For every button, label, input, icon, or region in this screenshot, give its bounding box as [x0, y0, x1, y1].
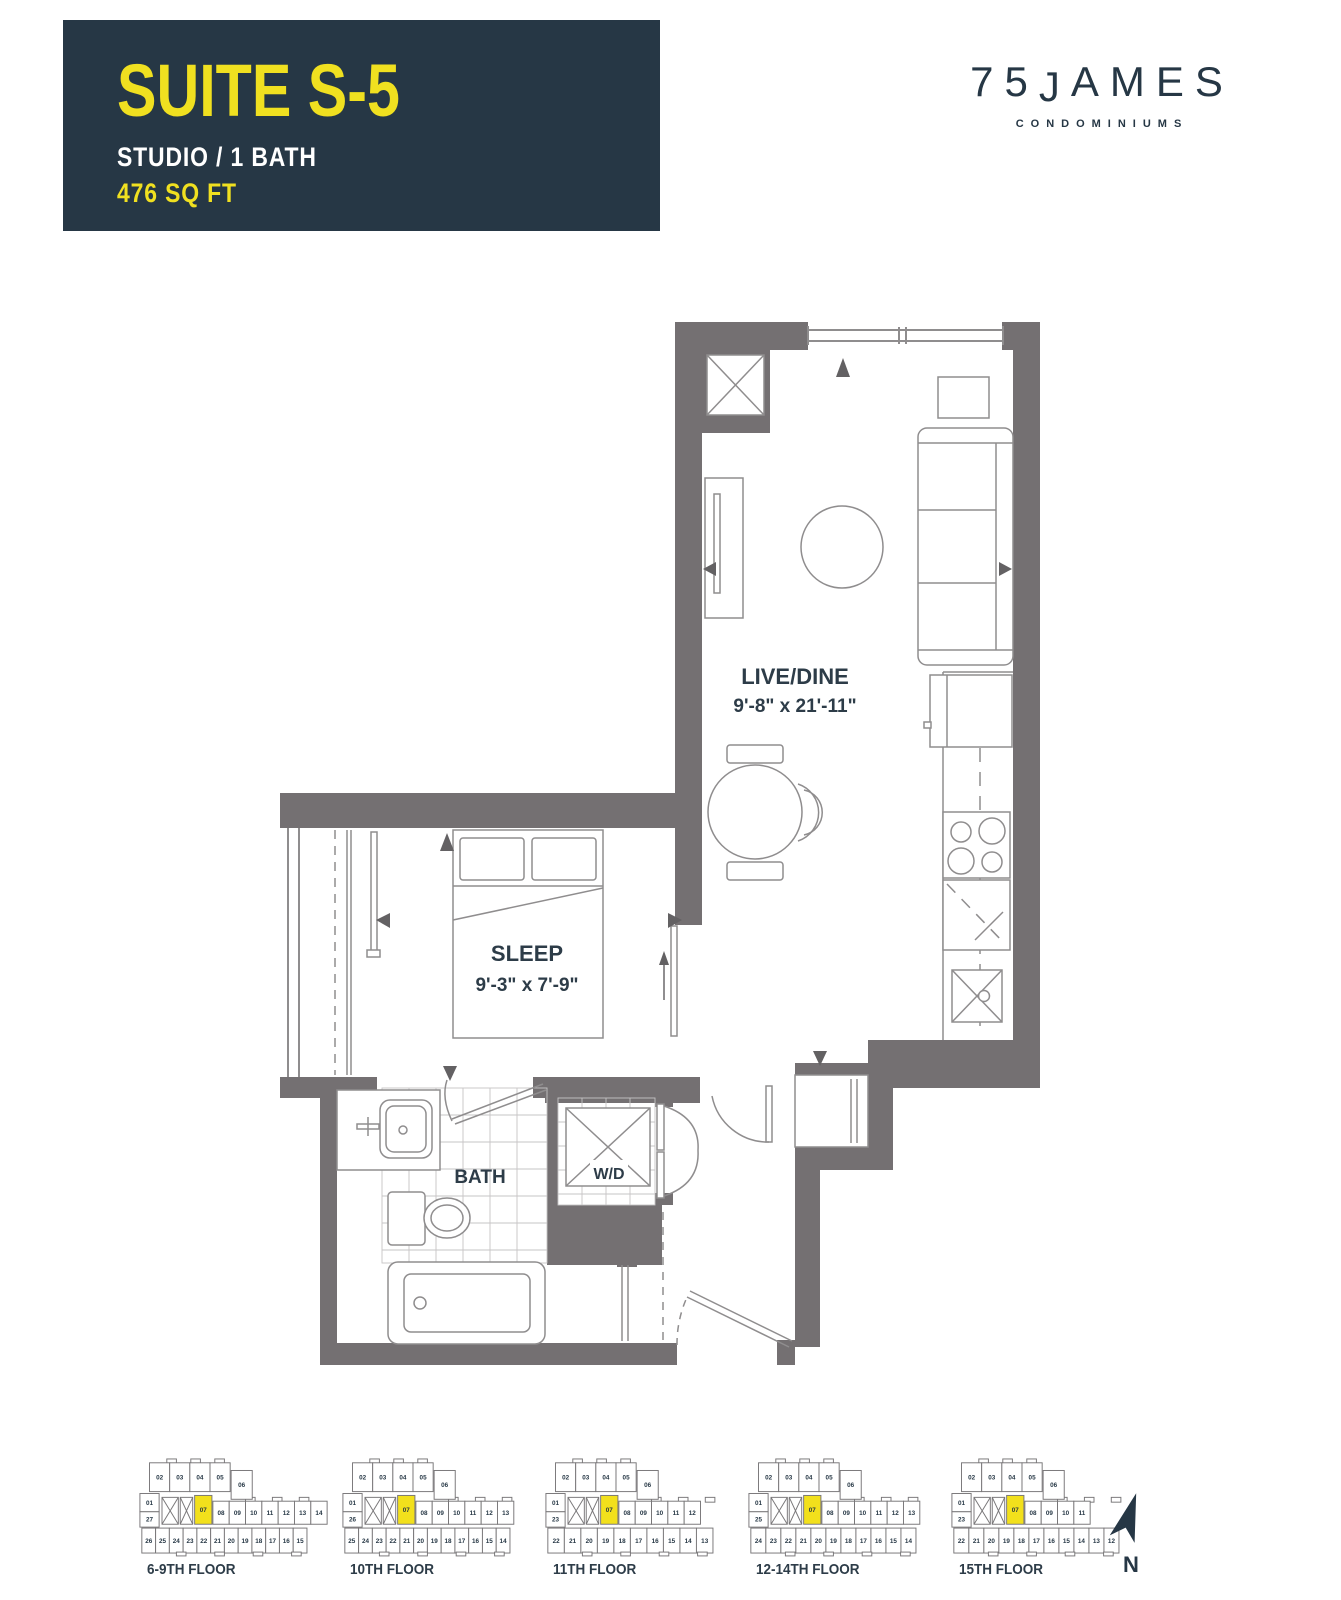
svg-text:08: 08: [1030, 1510, 1038, 1517]
svg-text:20: 20: [586, 1538, 594, 1545]
svg-text:23: 23: [186, 1538, 194, 1545]
svg-text:12: 12: [689, 1510, 697, 1517]
svg-text:17: 17: [1033, 1538, 1041, 1545]
svg-text:02: 02: [156, 1475, 164, 1482]
wd-doors: [657, 1104, 698, 1341]
svg-text:18: 18: [845, 1538, 853, 1545]
entry-partition: [622, 1265, 628, 1341]
fridge-icon: [924, 675, 1012, 747]
svg-text:16: 16: [875, 1538, 883, 1545]
svg-text:14: 14: [685, 1538, 693, 1545]
svg-text:20: 20: [815, 1538, 823, 1545]
key-plan: 0203040506012607080910111213252423222120…: [341, 1455, 533, 1578]
svg-text:15: 15: [297, 1538, 305, 1545]
svg-text:05: 05: [1029, 1475, 1037, 1482]
svg-text:15: 15: [486, 1538, 494, 1545]
svg-text:25: 25: [159, 1538, 167, 1545]
svg-text:06: 06: [1050, 1482, 1058, 1489]
window: [808, 326, 1003, 345]
key-plan-label: 10TH FLOOR: [341, 1561, 514, 1578]
side-table: [938, 377, 989, 418]
svg-text:20: 20: [228, 1538, 236, 1545]
svg-text:24: 24: [755, 1538, 763, 1545]
closet-sliding-door: [335, 830, 380, 1075]
svg-text:02: 02: [359, 1475, 367, 1482]
svg-text:09: 09: [234, 1510, 242, 1517]
sleep-label: SLEEP: [491, 941, 563, 966]
svg-text:14: 14: [500, 1538, 508, 1545]
key-plan-figure: 0203040506012707080910111213142625242322…: [138, 1455, 330, 1557]
svg-text:10: 10: [859, 1510, 867, 1517]
svg-text:13: 13: [502, 1510, 510, 1517]
dishwasher-icon: [943, 880, 1010, 950]
stove-icon: [943, 812, 1010, 878]
sleep-pocket-door: [664, 926, 677, 1036]
key-plan-figure: 0203040506012307080910111222212019181716…: [544, 1455, 736, 1557]
key-plan-figure: 0203040506012607080910111213252423222120…: [341, 1455, 533, 1557]
svg-text:11: 11: [1079, 1510, 1086, 1517]
svg-text:04: 04: [1008, 1475, 1016, 1482]
svg-text:04: 04: [805, 1475, 813, 1482]
sleep-window: [288, 828, 299, 1077]
north-arrow-icon: [1096, 1490, 1160, 1552]
svg-text:22: 22: [958, 1538, 966, 1545]
svg-text:12: 12: [892, 1510, 900, 1517]
svg-text:03: 03: [176, 1475, 184, 1482]
svg-text:13: 13: [299, 1510, 307, 1517]
svg-text:22: 22: [553, 1538, 561, 1545]
svg-text:16: 16: [652, 1538, 660, 1545]
svg-text:24: 24: [362, 1538, 370, 1545]
entry-door: [677, 1291, 792, 1347]
svg-text:19: 19: [602, 1538, 610, 1545]
floor-plan: LIVE/DINE 9'-8" x 21'-11" SLEEP 9'-3" x …: [0, 0, 1341, 1600]
svg-text:17: 17: [635, 1538, 643, 1545]
svg-text:19: 19: [1003, 1538, 1011, 1545]
wd-label: W/D: [593, 1166, 624, 1183]
sink-icon: [952, 970, 1002, 1022]
key-plan-label: 6-9TH FLOOR: [138, 1561, 311, 1578]
north-label: N: [1096, 1552, 1166, 1578]
svg-text:10: 10: [453, 1510, 461, 1517]
svg-text:22: 22: [785, 1538, 793, 1545]
svg-text:04: 04: [399, 1475, 407, 1482]
key-plan: 0203040506012707080910111213142625242322…: [138, 1455, 330, 1578]
svg-text:09: 09: [640, 1510, 648, 1517]
svg-text:02: 02: [968, 1475, 976, 1482]
svg-text:14: 14: [315, 1510, 323, 1517]
svg-text:18: 18: [255, 1538, 263, 1545]
svg-text:07: 07: [606, 1507, 614, 1514]
shaft-icon: [707, 355, 764, 415]
svg-text:16: 16: [1048, 1538, 1056, 1545]
svg-text:13: 13: [908, 1510, 916, 1517]
svg-text:07: 07: [403, 1507, 411, 1514]
svg-text:15: 15: [668, 1538, 676, 1545]
svg-text:20: 20: [417, 1538, 425, 1545]
svg-text:11: 11: [673, 1510, 680, 1517]
svg-text:15: 15: [1063, 1538, 1071, 1545]
bath-label: BATH: [454, 1167, 505, 1188]
svg-text:03: 03: [988, 1475, 996, 1482]
key-plan: 0203040506012507080910111213242322212019…: [747, 1455, 939, 1578]
svg-text:02: 02: [562, 1475, 570, 1482]
svg-text:16: 16: [472, 1538, 480, 1545]
svg-text:01: 01: [958, 1500, 966, 1507]
svg-text:10: 10: [656, 1510, 664, 1517]
svg-text:17: 17: [269, 1538, 277, 1545]
tv-console: [705, 478, 743, 618]
svg-text:06: 06: [441, 1482, 449, 1489]
svg-text:07: 07: [809, 1507, 817, 1514]
svg-text:12: 12: [486, 1510, 494, 1517]
svg-text:17: 17: [860, 1538, 868, 1545]
svg-text:17: 17: [458, 1538, 466, 1545]
dining-set: [708, 745, 822, 880]
svg-text:09: 09: [1046, 1510, 1054, 1517]
svg-text:08: 08: [421, 1510, 429, 1517]
svg-text:05: 05: [420, 1475, 428, 1482]
svg-text:11: 11: [876, 1510, 883, 1517]
svg-text:08: 08: [218, 1510, 226, 1517]
svg-text:05: 05: [217, 1475, 225, 1482]
svg-text:27: 27: [146, 1517, 154, 1524]
svg-text:05: 05: [826, 1475, 834, 1482]
svg-text:21: 21: [403, 1538, 411, 1545]
svg-text:23: 23: [958, 1517, 966, 1524]
svg-text:07: 07: [200, 1507, 208, 1514]
svg-text:09: 09: [437, 1510, 445, 1517]
key-plan: 0203040506012307080910111222212019181716…: [544, 1455, 736, 1578]
vanity-sink-icon: [337, 1090, 440, 1170]
svg-text:06: 06: [238, 1482, 246, 1489]
key-plan-label: 12-14TH FLOOR: [747, 1561, 920, 1578]
svg-text:03: 03: [582, 1475, 590, 1482]
svg-text:13: 13: [701, 1538, 709, 1545]
svg-text:06: 06: [847, 1482, 855, 1489]
svg-text:01: 01: [146, 1500, 154, 1507]
svg-text:19: 19: [431, 1538, 439, 1545]
svg-text:22: 22: [200, 1538, 208, 1545]
svg-text:15: 15: [890, 1538, 898, 1545]
svg-text:18: 18: [445, 1538, 453, 1545]
svg-text:19: 19: [242, 1538, 250, 1545]
svg-text:03: 03: [379, 1475, 387, 1482]
svg-text:14: 14: [905, 1538, 913, 1545]
svg-text:01: 01: [349, 1500, 357, 1507]
svg-text:26: 26: [145, 1538, 153, 1545]
bathtub-icon: [388, 1262, 545, 1344]
svg-text:21: 21: [569, 1538, 577, 1545]
svg-text:23: 23: [552, 1517, 560, 1524]
bed: [453, 830, 603, 1038]
svg-text:26: 26: [349, 1517, 357, 1524]
svg-text:14: 14: [1078, 1538, 1086, 1545]
svg-text:22: 22: [389, 1538, 397, 1545]
svg-text:02: 02: [765, 1475, 773, 1482]
svg-text:25: 25: [348, 1538, 356, 1545]
sleep-dims: 9'-3" x 7'-9": [475, 975, 578, 996]
svg-text:18: 18: [1018, 1538, 1026, 1545]
floor-plan-sheet: SUITE S-5 STUDIO / 1 BATH 476 SQ FT 75JA…: [0, 0, 1341, 1600]
svg-text:21: 21: [973, 1538, 981, 1545]
svg-text:24: 24: [173, 1538, 181, 1545]
svg-text:23: 23: [376, 1538, 384, 1545]
svg-text:20: 20: [988, 1538, 996, 1545]
sofa: [918, 428, 1013, 665]
svg-text:07: 07: [1012, 1507, 1020, 1514]
svg-text:04: 04: [196, 1475, 204, 1482]
coat-closet: [712, 1075, 868, 1147]
svg-text:08: 08: [624, 1510, 632, 1517]
key-plan-figure: 0203040506012507080910111213242322212019…: [747, 1455, 939, 1557]
svg-text:21: 21: [214, 1538, 222, 1545]
ottoman: [801, 506, 883, 588]
svg-text:11: 11: [470, 1510, 477, 1517]
toilet-icon: [388, 1192, 470, 1245]
svg-text:19: 19: [830, 1538, 838, 1545]
key-plans: 0203040506012707080910111213142625242322…: [138, 1455, 1143, 1578]
bath-door: [445, 1080, 546, 1124]
svg-text:10: 10: [1062, 1510, 1070, 1517]
svg-text:06: 06: [644, 1482, 652, 1489]
svg-text:03: 03: [785, 1475, 793, 1482]
svg-text:01: 01: [552, 1500, 560, 1507]
svg-text:23: 23: [770, 1538, 778, 1545]
svg-text:21: 21: [800, 1538, 808, 1545]
svg-text:11: 11: [267, 1510, 274, 1517]
svg-text:04: 04: [602, 1475, 610, 1482]
key-plan-label: 11TH FLOOR: [544, 1561, 717, 1578]
svg-text:18: 18: [619, 1538, 627, 1545]
svg-text:25: 25: [755, 1517, 763, 1524]
live-dine-label: LIVE/DINE: [741, 664, 849, 689]
svg-text:10: 10: [250, 1510, 258, 1517]
live-dine-dims: 9'-8" x 21'-11": [733, 696, 856, 717]
svg-text:12: 12: [283, 1510, 291, 1517]
svg-text:05: 05: [623, 1475, 631, 1482]
north-arrow: N: [1096, 1490, 1166, 1578]
svg-text:09: 09: [843, 1510, 851, 1517]
svg-text:08: 08: [827, 1510, 835, 1517]
svg-text:16: 16: [283, 1538, 291, 1545]
svg-text:01: 01: [755, 1500, 763, 1507]
